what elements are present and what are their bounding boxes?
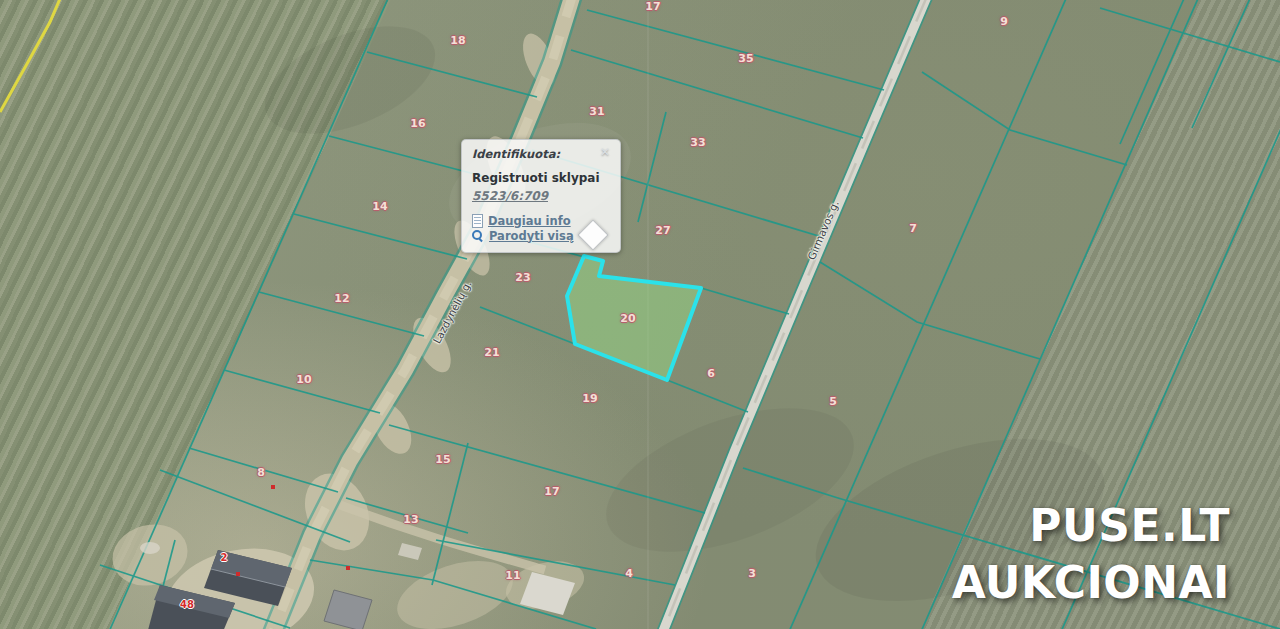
parcel-number-label: 21 bbox=[484, 346, 499, 359]
parcel-number-label: 17 bbox=[645, 0, 660, 13]
watermark: PUSE.LT AUKCIONAI bbox=[952, 497, 1230, 611]
parcel-number-label: 14 bbox=[372, 200, 387, 213]
parcel-number-label: 16 bbox=[410, 117, 425, 130]
document-icon bbox=[472, 214, 483, 228]
parcel-number-label: 3 bbox=[748, 567, 756, 580]
parcel-number-label: 35 bbox=[738, 52, 753, 65]
more-info-link[interactable]: Daugiau info bbox=[488, 214, 571, 228]
parcel-number-label: 5 bbox=[829, 395, 837, 408]
parcel-number-label: 10 bbox=[296, 373, 311, 386]
close-icon[interactable]: ✕ bbox=[600, 147, 610, 158]
parcel-number-label: 23 bbox=[515, 271, 530, 284]
parcel-number-label: 6 bbox=[707, 367, 715, 380]
show-all-link[interactable]: Parodyti visą bbox=[489, 229, 574, 243]
parcel-number-label: 31 bbox=[589, 105, 604, 118]
feature-id-link[interactable]: 5523/6:709 bbox=[472, 189, 548, 203]
parcel-number-label: 17 bbox=[544, 485, 559, 498]
parcel-number-label: 7 bbox=[909, 222, 917, 235]
watermark-line1: PUSE.LT bbox=[952, 497, 1230, 554]
parcel-number-label: 13 bbox=[403, 513, 418, 526]
street-name-label: Lazdynėlių g. bbox=[430, 278, 473, 345]
parcel-number-label: 20 bbox=[620, 312, 635, 325]
parcel-number-label: 27 bbox=[655, 224, 670, 237]
parcel-number-label: 33 bbox=[690, 136, 705, 149]
parcel-number-label: 19 bbox=[582, 392, 597, 405]
red-number-label: 48 bbox=[180, 599, 194, 610]
parcel-number-label: 12 bbox=[334, 292, 349, 305]
parcel-number-label: 18 bbox=[450, 34, 465, 47]
popup-title: Identifikuota: bbox=[472, 147, 560, 161]
red-number-label: 2 bbox=[221, 552, 228, 563]
parcel-number-label: 15 bbox=[435, 453, 450, 466]
parcel-number-label: 11 bbox=[505, 569, 520, 582]
watermark-line2: AUKCIONAI bbox=[952, 554, 1230, 611]
parcel-number-label: 9 bbox=[1000, 15, 1008, 28]
map-canvas[interactable]: 1791835311633147272312202161019515817134… bbox=[0, 0, 1280, 629]
street-name-label: Girmavos g. bbox=[805, 199, 841, 262]
popup-layer-name: Registruoti sklypai bbox=[472, 171, 610, 185]
parcel-number-label: 4 bbox=[625, 567, 633, 580]
magnifier-icon bbox=[472, 230, 484, 242]
parcel-number-label: 8 bbox=[257, 466, 265, 479]
